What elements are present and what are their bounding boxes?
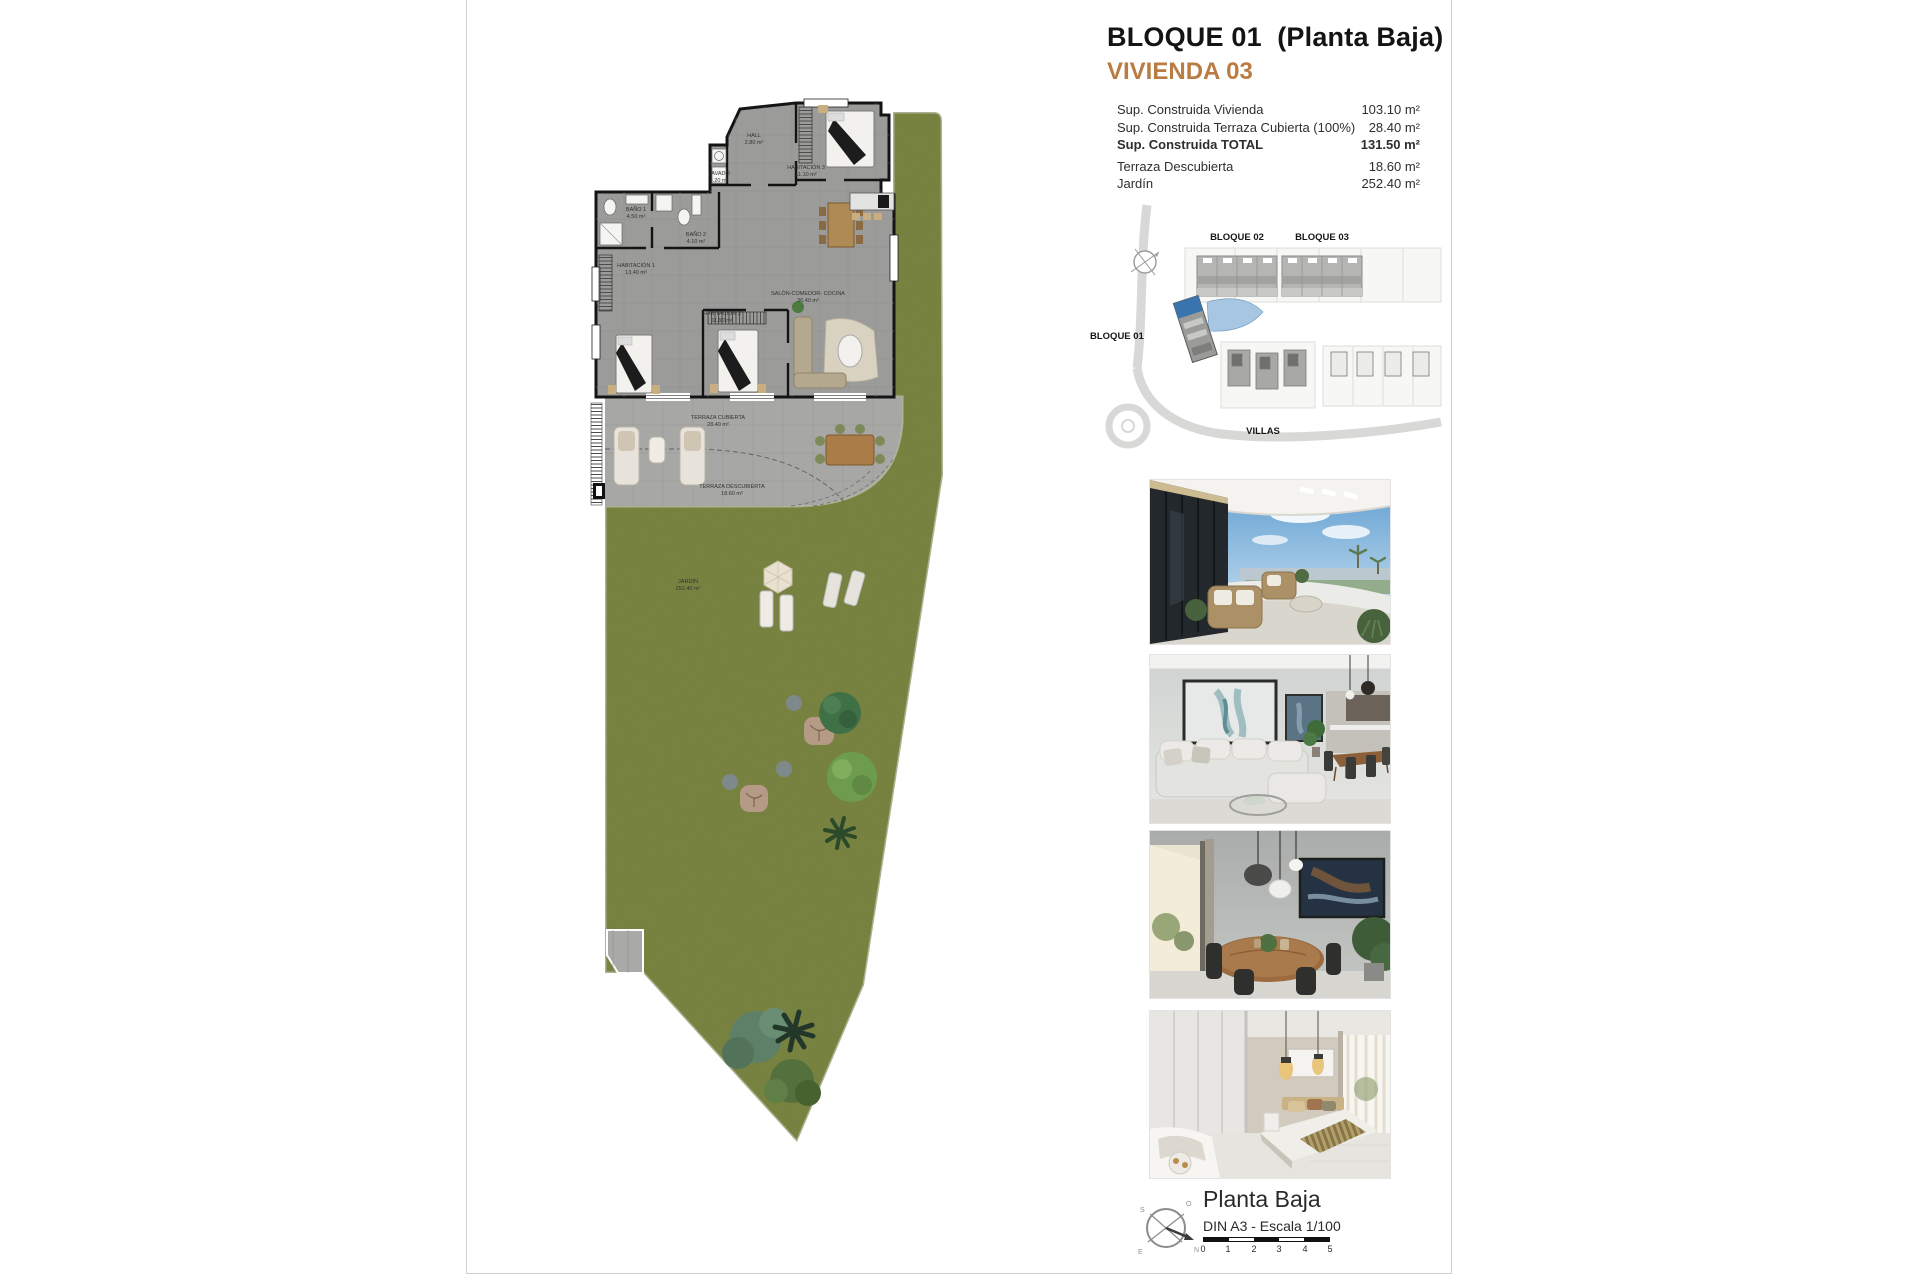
bloque-01-label: BLOQUE 01 [1090,331,1145,342]
surface-spec-table: Sup. Construida Vivienda103.10 m² Sup. C… [1117,101,1420,193]
wall-art [1288,1049,1334,1077]
photo-terrace [1150,480,1390,644]
photo-dining-room [1150,831,1390,998]
wardrobe-icon [799,107,812,163]
room-label: SALÓN-COMEDOR- COCINA36.40 m² [771,291,845,304]
wall-art [1300,859,1384,917]
photo-bedroom [1150,1011,1390,1178]
bloque-02-label: BLOQUE 02 [1210,232,1264,243]
page: HALL2.80 m² LAVADO3.20 m² HABITACIÓN 311… [0,0,1920,1280]
tree-icon [819,692,861,734]
svg-text:S: S [1140,1207,1145,1214]
villas-label: VILLAS [1246,426,1280,437]
scale-bar [1203,1237,1330,1242]
room-label: TERRAZA DESCUBIERTA18.60 m² [699,484,765,497]
plan-name: Planta Baja [1203,1186,1321,1213]
page-border-bottom [466,1273,1452,1274]
spec-row: Jardín252.40 m² [1117,175,1420,193]
bed-icon [608,335,660,394]
room-label: HALL2.80 m² [745,133,764,146]
room-label: HABITACIÓN 211.90 m² [703,311,741,324]
svg-text:O: O [1186,1201,1192,1208]
room-label: TERRAZA CUBIERTA28.40 m² [691,415,745,428]
sofa [1156,739,1326,803]
window-left [1150,839,1214,991]
room-label: LAVADO3.20 m² [708,171,730,184]
spec-row-total: Sup. Construida TOTAL131.50 m² [1117,136,1420,154]
pendant-lamp-icon [1361,681,1375,695]
kitchen-back [1326,691,1390,753]
north-compass-icon [1131,249,1159,275]
photo-living-room [1150,655,1390,823]
bloque-03-label: BLOQUE 03 [1295,232,1349,243]
scale-note: DIN A3 - Escala 1/100 [1203,1218,1341,1234]
room-label: HABITACIÓN 311.10 m² [787,165,825,178]
floor-plan: HALL2.80 m² LAVADO3.20 m² HABITACIÓN 311… [588,85,950,1147]
compass-icon: S O E N [1128,1192,1204,1262]
page-border-left [466,0,467,1274]
wardrobe-icon [599,255,612,311]
spec-row: Sup. Construida Terraza Cubierta (100%)2… [1117,119,1420,137]
room-label: JARDÍN252.40 m² [676,579,701,592]
spec-row: Terraza Descubierta18.60 m² [1117,158,1420,176]
tree-icon [827,752,877,802]
bed-icon [710,330,766,393]
page-border-right [1451,0,1452,1274]
room-label: BAÑO 14.50 m² [626,207,646,220]
unit-subtitle: VIVIENDA 03 [1107,58,1253,86]
site-plan: BLOQUE 02 BLOQUE 03 BLOQUE 01 VILLAS [1085,200,1445,485]
scale-ticks: 0 1 2 3 4 5 [1203,1244,1330,1256]
terrace-doors [646,393,866,401]
floor-plan-drawing [588,85,950,1147]
beanbag-icon [740,785,768,812]
wall-art [1184,681,1276,743]
roads [1109,205,1441,445]
bloque-02-building [1197,256,1277,296]
spec-row: Sup. Construida Vivienda103.10 m² [1117,101,1420,119]
svg-text:N: N [1194,1247,1199,1254]
room-label: BAÑO 24.10 m² [686,232,706,245]
page-title: BLOQUE 01 (Planta Baja) [1107,22,1443,53]
bed-icon [818,105,874,167]
svg-text:E: E [1138,1249,1143,1256]
room-label: HABITACIÓN 113.40 m² [617,263,655,276]
bloque-03-building [1282,256,1362,296]
